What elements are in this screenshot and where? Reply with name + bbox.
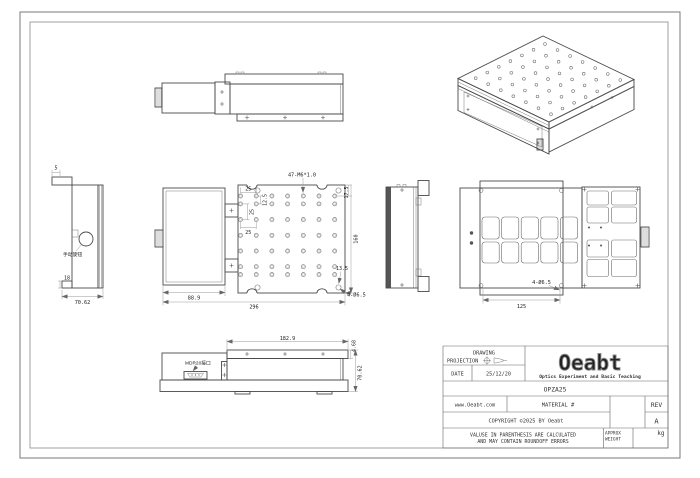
thread-hole: [286, 194, 290, 198]
thread-hole-minor: [255, 234, 257, 236]
part-number: OPZA25: [544, 387, 567, 394]
thread-hole: [238, 273, 242, 277]
dim-carriage-width: 88.9: [188, 296, 201, 302]
pocket: [541, 217, 558, 239]
thread-hole: [333, 218, 337, 222]
iso-thread-hole: [549, 101, 552, 104]
thread-hole: [286, 218, 290, 222]
thread-hole: [286, 273, 290, 277]
iso-thread-hole: [583, 84, 586, 87]
drawing-label: DRAWING: [473, 351, 495, 357]
thread-hole-minor: [302, 195, 304, 197]
iso-thread-hole: [546, 66, 549, 69]
iso-thread-hole: [509, 60, 512, 63]
thread-hole: [254, 233, 258, 237]
clearance-hole: [336, 188, 341, 193]
dim-edge-top: 17.5: [344, 186, 350, 198]
thread-hole-minor: [334, 218, 336, 220]
iso-thread-hole: [510, 71, 513, 74]
thread-hole-minor: [239, 203, 241, 205]
thread-hole-minor: [239, 273, 241, 275]
thread-hole-minor: [286, 218, 288, 220]
dim-body-length: 182.9: [280, 336, 296, 342]
thread-hole: [270, 233, 274, 237]
thread-hole-minor: [255, 203, 257, 205]
view-bottom: 4-Ø6.5 125: [460, 181, 649, 310]
thread-hole: [301, 273, 305, 277]
knob-label: 手动旋钮: [63, 251, 82, 258]
iso-thread-hole: [499, 89, 502, 92]
iso-thread-hole: [535, 83, 538, 86]
pocket: [587, 191, 609, 205]
iso-thread-hole: [534, 72, 537, 75]
pocket: [502, 242, 519, 263]
thread-hole: [270, 194, 274, 198]
pocket: [587, 240, 609, 257]
iso-thread-hole: [544, 43, 547, 46]
dim-flange: 5: [54, 166, 57, 172]
note-line2: AND MAY CONTAIN ROUNDOFF ERRORS: [477, 439, 568, 445]
iso-thread-hole: [561, 107, 564, 110]
thread-hole-grid: [238, 194, 336, 277]
iso-thread-hole: [474, 77, 477, 80]
iso-thread-hole: [536, 95, 539, 98]
thread-hole: [286, 265, 290, 269]
thread-hole: [317, 265, 321, 269]
carriage: [163, 188, 225, 285]
thread-hole-minor: [255, 266, 257, 268]
dim-hole-spacing: 125: [517, 304, 526, 310]
thread-hole-minor: [255, 273, 257, 275]
rev-value: A: [654, 418, 659, 426]
thread-hole-minor: [271, 195, 273, 197]
thread-hole: [270, 273, 274, 277]
thread-hole: [301, 194, 305, 198]
thread-hole-minor: [255, 195, 257, 197]
thread-hole-minor: [286, 195, 288, 197]
thread-callout: 47-M6*1.0: [288, 173, 316, 179]
thread-hole-minor: [255, 218, 257, 220]
pocket: [482, 217, 499, 239]
view-side-right: [386, 181, 429, 292]
note-line1: VALUSE IN PARENTHESIS ARE CALCULATED: [470, 433, 576, 439]
iso-thread-hole: [537, 107, 540, 110]
iso-thread-hole: [497, 65, 500, 68]
thread-hole-minor: [302, 218, 304, 220]
dim-pitch-v2: 25: [250, 209, 256, 215]
thread-hole: [254, 273, 258, 277]
iso-thread-hole: [547, 78, 550, 81]
iso-thread-hole: [582, 72, 585, 75]
dim-overall-height: 70.62: [358, 365, 364, 381]
projection-label: PROJECTION: [447, 359, 478, 365]
thread-hole: [333, 194, 337, 198]
iso-thread-hole: [570, 66, 573, 69]
iso-thread-hole: [619, 79, 622, 82]
iso-thread-hole: [550, 113, 553, 116]
iso-thread-hole: [607, 84, 610, 87]
iso-thread-hole: [573, 101, 576, 104]
thread-hole-minor: [318, 250, 320, 252]
thread-hole-minor: [286, 266, 288, 268]
table-plate: [238, 185, 345, 293]
thread-hole: [238, 194, 242, 198]
thread-hole: [301, 218, 305, 222]
thread-hole: [301, 265, 305, 269]
thread-hole: [254, 194, 258, 198]
thread-hole-minor: [239, 266, 241, 268]
iso-thread-hole: [606, 73, 609, 76]
weight-label-1: APPROX: [605, 431, 621, 437]
thread-hole: [333, 233, 337, 237]
thread-hole: [270, 202, 274, 206]
thread-hole: [317, 194, 321, 198]
iso-thread-hole: [498, 77, 501, 80]
thread-hole: [317, 273, 321, 277]
iso-thread-hole: [521, 54, 524, 57]
weight-label-2: WEIGHT: [605, 437, 621, 443]
dim-height: 160: [354, 234, 360, 243]
thread-hole: [301, 249, 305, 253]
thread-hole: [238, 218, 242, 222]
pocket: [521, 217, 538, 239]
iso-thread-hole: [522, 66, 525, 69]
dim-pitch-h1: 25: [245, 187, 251, 193]
thread-hole: [238, 233, 242, 237]
iso-thread-hole: [487, 83, 490, 86]
pocket: [502, 217, 519, 239]
logo-tagline: Optics Experiment and Basic Teaching: [539, 374, 641, 380]
thread-hole: [238, 202, 242, 206]
thread-hole-minor: [271, 250, 273, 252]
iso-thread-hole: [548, 89, 551, 92]
iso-thread-hole: [595, 78, 598, 81]
pocket: [521, 242, 538, 263]
thread-hole-minor: [334, 250, 336, 252]
dim-corner: 13.5: [336, 266, 348, 272]
thread-hole: [238, 249, 242, 253]
material-label: MATERIAL #: [542, 403, 575, 409]
thread-hole: [333, 273, 337, 277]
logo: Oeabt: [558, 351, 621, 375]
thread-hole-minor: [318, 218, 320, 220]
pocket: [482, 242, 499, 263]
date-value: 25/12/20: [486, 372, 511, 378]
pocket: [541, 242, 558, 263]
clearance-hole: [255, 285, 260, 290]
view-plan: 47-M6*1.0 25 12.5 25 25 17.5 160 13.5 4-…: [155, 173, 366, 311]
thread-hole-minor: [239, 218, 241, 220]
inner-border: [30, 22, 668, 448]
thread-hole-minor: [334, 203, 336, 205]
drawing-sheet: 手动旋钮 5 18 70.62 47-M6*1.0 25: [0, 0, 700, 478]
thread-hole: [270, 218, 274, 222]
dim-pitch-h2: 25: [245, 230, 251, 236]
clearance-hole: [336, 285, 341, 290]
iso-thread-hole: [512, 95, 515, 98]
thread-hole: [301, 233, 305, 237]
thread-hole: [333, 202, 337, 206]
dim-plate-thickness: 4.68: [352, 340, 358, 352]
bottom-hole-callout: 4-Ø6.5: [532, 279, 551, 286]
drawing-canvas: 手动旋钮 5 18 70.62 47-M6*1.0 25: [0, 0, 700, 478]
dim-base: 18: [64, 276, 70, 282]
iso-thread-hole: [584, 96, 587, 99]
connector-label: MDR20接口: [185, 360, 211, 367]
thread-hole-minor: [318, 203, 320, 205]
thread-hole: [286, 233, 290, 237]
thread-hole: [270, 265, 274, 269]
view-left-end: 手动旋钮 5 18 70.62: [52, 166, 103, 307]
outer-border: [20, 12, 680, 458]
thread-hole-minor: [286, 273, 288, 275]
thread-hole: [286, 249, 290, 253]
thread-hole: [254, 249, 258, 253]
iso-thread-hole: [525, 101, 528, 104]
thread-hole-minor: [302, 234, 304, 236]
iso-thread-hole: [558, 72, 561, 75]
thread-hole-minor: [239, 250, 241, 252]
iso-thread-hole: [594, 67, 597, 70]
rev-label: REV: [651, 402, 663, 409]
thread-hole-minor: [302, 203, 304, 205]
iso-thread-hole: [572, 90, 575, 93]
iso-thread-hole: [569, 55, 572, 58]
thread-hole-minor: [271, 203, 273, 205]
iso-thread-hole: [524, 89, 527, 92]
thread-hole-minor: [302, 250, 304, 252]
thread-hole: [286, 202, 290, 206]
plan-hole-callout: 4-Ø6.5: [347, 292, 366, 299]
title-block: DRAWING PROJECTION DATE 25/12/20 Oeabt O…: [443, 346, 668, 448]
pocket: [587, 260, 609, 277]
thread-hole-minor: [255, 250, 257, 252]
thread-hole: [317, 249, 321, 253]
thread-hole-minor: [302, 266, 304, 268]
thread-hole: [301, 202, 305, 206]
manual-knob-face: [79, 232, 93, 246]
thread-hole-minor: [302, 273, 304, 275]
thread-hole: [333, 249, 337, 253]
base-pockets: [587, 191, 637, 277]
date-label: DATE: [451, 372, 464, 378]
pocket: [612, 191, 637, 205]
iso-thread-hole: [523, 77, 526, 80]
thread-hole-minor: [286, 234, 288, 236]
thread-hole-minor: [286, 203, 288, 205]
thread-hole: [254, 218, 258, 222]
pocket: [612, 207, 637, 223]
thread-hole: [317, 202, 321, 206]
iso-thread-hole: [556, 49, 559, 52]
thread-hole-minor: [318, 195, 320, 197]
pocket: [587, 207, 609, 223]
dim-pitch-v1: 12.5: [263, 194, 269, 206]
thread-hole-minor: [334, 234, 336, 236]
website: www.Oeabt.com: [455, 403, 496, 409]
iso-thread-hole: [486, 71, 489, 74]
thread-hole: [254, 202, 258, 206]
thread-hole: [238, 265, 242, 269]
thread-hole-minor: [318, 266, 320, 268]
thread-hole-minor: [334, 273, 336, 275]
view-front: MDR20接口 182.9 4.68 70.62: [160, 336, 364, 394]
iso-thread-hole: [596, 90, 599, 93]
iso-thread-hole: [559, 84, 562, 87]
dim-width: 70.62: [75, 300, 91, 306]
iso-thread-hole: [511, 83, 514, 86]
thread-hole-minor: [318, 234, 320, 236]
isometric-hole-grid: [474, 43, 621, 116]
thread-hole-minor: [271, 266, 273, 268]
dim-overall-length: 296: [249, 305, 258, 311]
iso-thread-hole: [533, 60, 536, 63]
thread-hole: [270, 249, 274, 253]
iso-thread-hole: [545, 54, 548, 57]
iso-thread-hole: [557, 60, 560, 63]
thread-hole-minor: [318, 273, 320, 275]
thread-hole: [317, 218, 321, 222]
thread-hole-minor: [239, 195, 241, 197]
view-side-elevation: [155, 72, 343, 121]
iso-thread-hole: [571, 78, 574, 81]
weight-unit: kg: [657, 430, 665, 437]
view-isometric: [458, 36, 634, 154]
thread-hole: [254, 265, 258, 269]
pocket: [612, 260, 637, 277]
iso-thread-hole: [560, 95, 563, 98]
thread-hole-minor: [271, 218, 273, 220]
iso-thread-hole: [532, 48, 535, 51]
pocket: [612, 240, 637, 257]
thread-hole-minor: [239, 234, 241, 236]
thread-hole: [317, 233, 321, 237]
thread-hole-minor: [271, 234, 273, 236]
copyright: COPYRIGHT ©2025 BY Oeabt: [489, 419, 564, 425]
thread-hole-minor: [334, 195, 336, 197]
iso-thread-hole: [581, 61, 584, 64]
projection-symbol-icon: [483, 357, 507, 365]
thread-hole-minor: [286, 250, 288, 252]
thread-hole-minor: [271, 273, 273, 275]
